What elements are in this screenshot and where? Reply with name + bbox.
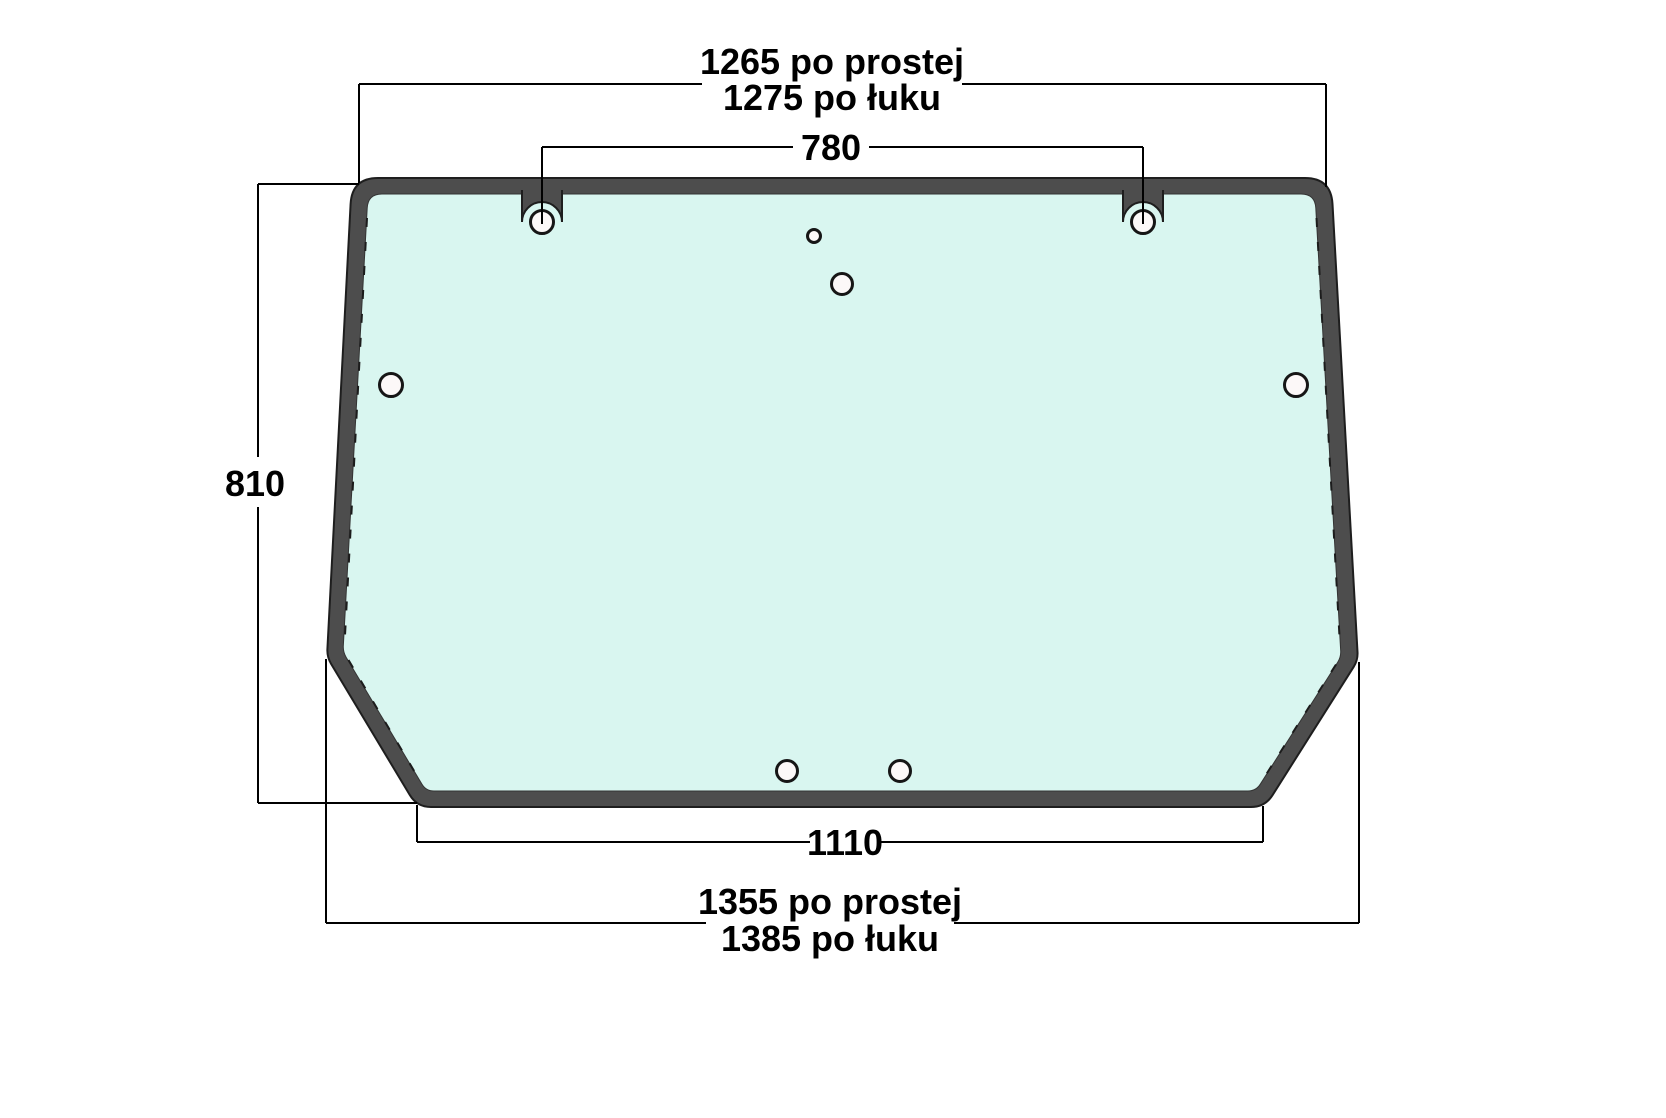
mounting-hole-bottom-left	[777, 761, 798, 782]
dimension-bottom-edge: 1110	[417, 805, 1263, 863]
dimension-top-width-arc-label: 1275 po łuku	[723, 77, 941, 118]
mounting-hole-small-center	[808, 230, 821, 243]
glass-panel-diagram: 1265 po prostej 1275 po łuku 780 810 111…	[0, 0, 1666, 1118]
mounting-hole-left	[380, 374, 403, 397]
mounting-hole-right	[1285, 374, 1308, 397]
technical-drawing-canvas: 1265 po prostej 1275 po łuku 780 810 111…	[0, 0, 1666, 1118]
dimension-hole-spacing-label: 780	[801, 127, 861, 168]
mounting-hole-bottom-right	[890, 761, 911, 782]
dimension-height-label: 810	[225, 463, 285, 504]
dimension-bottom-width-arc-label: 1385 po łuku	[721, 918, 939, 959]
mounting-hole-center	[832, 274, 853, 295]
dimension-bottom-edge-label: 1110	[807, 822, 883, 863]
dimension-top-width-straight-label: 1265 po prostej	[700, 41, 964, 82]
dimension-bottom-width-straight-label: 1355 po prostej	[698, 881, 962, 922]
